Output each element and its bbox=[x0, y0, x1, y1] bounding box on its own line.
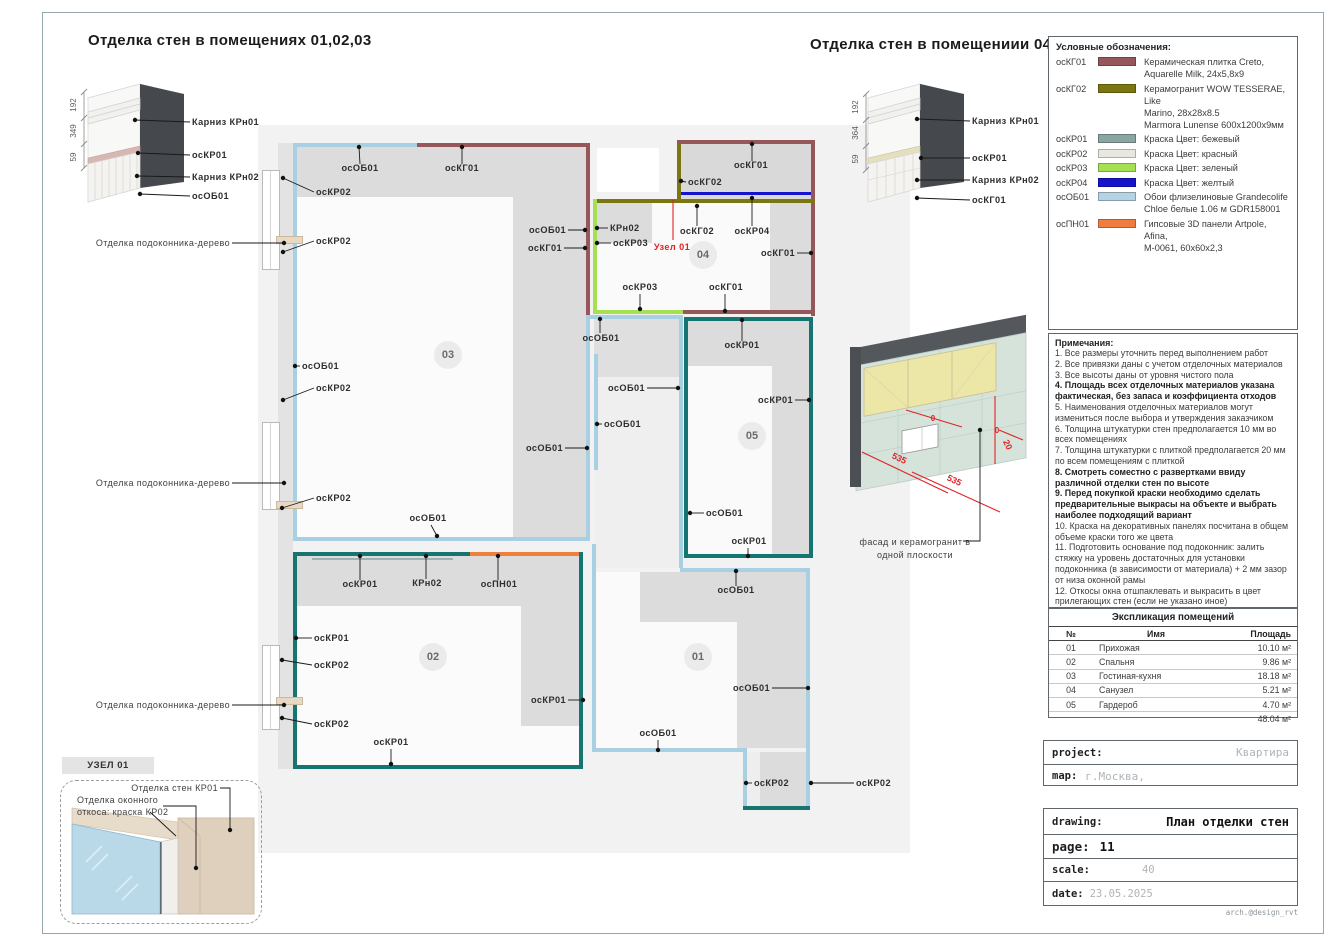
wall-segment-lb bbox=[680, 568, 810, 572]
note-item: 8. Смотреть соместно с развертками ввиду… bbox=[1055, 467, 1291, 489]
note-item: 11. Подготовить основание под подоконник… bbox=[1055, 542, 1291, 585]
col-area: Площадь bbox=[1219, 627, 1297, 640]
legend-code: осКР01 bbox=[1056, 133, 1098, 145]
rooms-table-title: Экспликация помещений bbox=[1049, 609, 1297, 627]
table-row: 02Спальня9.86 м² bbox=[1049, 655, 1297, 669]
drawing-titleblock: drawing: План отделки стен page: 11 scal… bbox=[1043, 808, 1298, 906]
legend-swatch bbox=[1098, 57, 1136, 66]
scale-value: 40 bbox=[1142, 864, 1155, 876]
map-value: г.Москва, bbox=[1085, 770, 1145, 783]
table-row: 01Прихожая10.10 м² bbox=[1049, 641, 1297, 655]
notes-panel: Примечания: 1. Все размеры уточнить пере… bbox=[1048, 333, 1298, 608]
wall-segment-lb bbox=[594, 354, 598, 470]
wall-segment-teal bbox=[293, 765, 583, 769]
floor-fill bbox=[297, 556, 579, 606]
uzel01-tag: УЗЕЛ 01 bbox=[62, 757, 154, 774]
title-room-04: Отделка стен в помещениии 04 bbox=[810, 36, 1051, 53]
note-item: 2. Все привязки даны с учетом отделочных… bbox=[1055, 359, 1291, 370]
author-credit: arch.@design_rvt bbox=[1048, 908, 1298, 917]
legend-swatch bbox=[1098, 192, 1136, 201]
floor-fill bbox=[681, 144, 811, 199]
legend-desc: Краска Цвет: желтый bbox=[1144, 177, 1290, 189]
wall-segment-lb bbox=[293, 143, 417, 147]
scale-label: scale: bbox=[1052, 864, 1090, 876]
wall-segment-gr bbox=[593, 199, 597, 314]
floor-fill bbox=[737, 622, 806, 748]
table-row: 03Гостиная-кухня18.18 м² bbox=[1049, 670, 1297, 684]
page-value: 11 bbox=[1100, 839, 1115, 854]
wall-segment-mr bbox=[417, 143, 590, 147]
wall-segment-teal bbox=[293, 552, 470, 556]
legend-desc: Обои флизелиновые GrandecolifeChloe белы… bbox=[1144, 191, 1290, 215]
legend-row: осКГ02Керамогранит WOW TESSERAE, LikeMar… bbox=[1056, 83, 1290, 131]
legend-code: осКР04 bbox=[1056, 177, 1098, 189]
legend-swatch bbox=[1098, 134, 1136, 143]
wall-segment-lb bbox=[679, 317, 683, 568]
note-item: 12. Откосы окна отшпаклевать и выкрасить… bbox=[1055, 586, 1291, 608]
room-number-01: 01 bbox=[684, 643, 712, 671]
legend-row: осКР02Краска Цвет: красный bbox=[1056, 148, 1290, 160]
table-row: 04Санузел5.21 м² bbox=[1049, 684, 1297, 698]
legend-swatch bbox=[1098, 219, 1136, 228]
note-item: 7. Толщина штукатурки с плиткой предпола… bbox=[1055, 445, 1291, 467]
wall-segment-teal bbox=[684, 317, 688, 558]
floor-fill bbox=[770, 203, 811, 310]
legend-swatch bbox=[1098, 163, 1136, 172]
window bbox=[262, 170, 280, 270]
floor-fill bbox=[640, 572, 806, 622]
col-number: № bbox=[1049, 627, 1093, 640]
legend-desc: Гипсовые 3D панели Artpole, Afina,M-0061… bbox=[1144, 218, 1290, 254]
wall-segment-gr bbox=[593, 310, 685, 314]
floor-fill bbox=[688, 321, 809, 366]
legend-swatch bbox=[1098, 178, 1136, 187]
drawing-row: drawing: План отделки стен bbox=[1044, 809, 1297, 834]
wall-segment-teal bbox=[579, 552, 583, 769]
project-row: project: Квартира bbox=[1044, 741, 1297, 764]
window-sill bbox=[276, 697, 303, 705]
window-sill bbox=[276, 236, 303, 244]
legend-desc: Керамогранит WOW TESSERAE, LikeMarino, 2… bbox=[1144, 83, 1290, 131]
date-label: date: bbox=[1052, 888, 1084, 900]
wall-segment-mr bbox=[586, 143, 590, 315]
note-item: 4. Площадь всех отделочных материалов ук… bbox=[1055, 380, 1291, 402]
legend-code: осОБ01 bbox=[1056, 191, 1098, 215]
window-sill bbox=[276, 501, 303, 509]
note-item: 3. Все высоты даны от уровня чистого пол… bbox=[1055, 370, 1291, 381]
wall-segment-lb bbox=[806, 748, 810, 810]
room-number-02: 02 bbox=[419, 643, 447, 671]
note-item: 10. Краска на декоративных панелях посчи… bbox=[1055, 521, 1291, 543]
notes-title: Примечания: bbox=[1055, 338, 1291, 348]
legend-row: осКГ01Керамическая плитка Creto,Aquarell… bbox=[1056, 56, 1290, 80]
wall-segment-or bbox=[470, 552, 583, 556]
legend-code: осКГ02 bbox=[1056, 83, 1098, 131]
window bbox=[262, 645, 280, 730]
drawing-value: План отделки стен bbox=[1166, 815, 1289, 829]
map-row: map: г.Москва, bbox=[1044, 764, 1297, 787]
floor-fill bbox=[597, 148, 659, 192]
wall-detail-iso-right bbox=[868, 68, 968, 213]
wall-detail-iso-left bbox=[88, 68, 188, 213]
wall-segment-lb bbox=[743, 748, 747, 810]
project-label: project: bbox=[1052, 747, 1103, 759]
note-item: 9. Перед покупкой краски необходимо сдел… bbox=[1055, 488, 1291, 520]
legend-desc: Краска Цвет: зеленый bbox=[1144, 162, 1290, 174]
wall-segment-lb bbox=[588, 315, 683, 319]
wall-segment-teal bbox=[293, 552, 297, 769]
table-row: 05Гардероб4.70 м² bbox=[1049, 698, 1297, 712]
node01-drawing bbox=[850, 315, 1035, 550]
wall-segment-mr bbox=[811, 140, 815, 316]
floor-fill bbox=[597, 203, 652, 243]
floor-fill bbox=[297, 147, 586, 197]
floor-fill bbox=[594, 317, 679, 377]
wall-segment-lb bbox=[293, 537, 590, 541]
date-row: date: 23.05.2025 bbox=[1044, 881, 1297, 905]
legend-swatch bbox=[1098, 149, 1136, 158]
page-row: page: 11 bbox=[1044, 834, 1297, 858]
floor-fill bbox=[760, 752, 806, 806]
drawing-sheet: Отделка стен в помещениях 01,02,03 Отдел… bbox=[0, 0, 1337, 941]
rooms-table-total: 48.04 м² bbox=[1049, 712, 1297, 725]
project-value: Квартира bbox=[1236, 746, 1289, 759]
room-number-04: 04 bbox=[689, 241, 717, 269]
floor-fill bbox=[521, 606, 579, 726]
legend-code: осКР03 bbox=[1056, 162, 1098, 174]
wall-segment-mr bbox=[683, 310, 815, 314]
wall-segment-lb bbox=[592, 748, 747, 752]
note-item: 1. Все размеры уточнить перед выполнение… bbox=[1055, 348, 1291, 359]
total-area: 48.04 м² bbox=[1219, 712, 1297, 725]
date-value: 23.05.2025 bbox=[1090, 888, 1153, 900]
map-label: map: bbox=[1052, 770, 1077, 782]
wall-segment-crn bbox=[312, 558, 453, 560]
legend-row: осПН01Гипсовые 3D панели Artpole, Afina,… bbox=[1056, 218, 1290, 254]
wall-segment-lb bbox=[293, 143, 297, 541]
rooms-table: Экспликация помещений № Имя Площадь 01Пр… bbox=[1048, 608, 1298, 718]
drawing-label: drawing: bbox=[1052, 816, 1103, 828]
legend-desc: Краска Цвет: бежевый bbox=[1144, 133, 1290, 145]
legend-row: осКР03Краска Цвет: зеленый bbox=[1056, 162, 1290, 174]
rooms-table-header: № Имя Площадь bbox=[1049, 627, 1297, 641]
legend-row: осКР04Краска Цвет: желтый bbox=[1056, 177, 1290, 189]
wall-segment-ol bbox=[593, 199, 815, 203]
wall-segment-teal bbox=[809, 317, 813, 558]
wall-segment-lb bbox=[806, 568, 810, 752]
col-name: Имя bbox=[1093, 627, 1219, 640]
legend-code: осКГ01 bbox=[1056, 56, 1098, 80]
legend-row: осКР01Краска Цвет: бежевый bbox=[1056, 133, 1290, 145]
project-titleblock: project: Квартира map: г.Москва, bbox=[1043, 740, 1298, 786]
legend-row: осОБ01Обои флизелиновые GrandecolifeChlo… bbox=[1056, 191, 1290, 215]
legend-desc: Керамическая плитка Creto,Aquarelle Milk… bbox=[1144, 56, 1290, 80]
note-item: 5. Наименования отделочных материалов мо… bbox=[1055, 402, 1291, 424]
note-item: 6. Толщина штукатурки стен предполагаетс… bbox=[1055, 424, 1291, 446]
wall-segment-teal bbox=[743, 806, 810, 810]
scale-row: scale: 40 bbox=[1044, 858, 1297, 881]
wall-segment-mr bbox=[677, 140, 815, 144]
room-number-05: 05 bbox=[738, 422, 766, 450]
legend-title: Условные обозначения: bbox=[1056, 42, 1290, 53]
legend-code: осПН01 bbox=[1056, 218, 1098, 254]
legend-code: осКР02 bbox=[1056, 148, 1098, 160]
wall-segment-lb bbox=[586, 315, 590, 541]
legend-panel: Условные обозначения: осКГ01Керамическая… bbox=[1048, 36, 1298, 330]
wall-segment-teal bbox=[684, 554, 813, 558]
legend-desc: Краска Цвет: красный bbox=[1144, 148, 1290, 160]
room-number-03: 03 bbox=[434, 341, 462, 369]
wall-segment-teal bbox=[684, 317, 813, 321]
wall-segment-lb bbox=[592, 544, 596, 748]
floor-fill bbox=[513, 197, 586, 537]
page-label: page: bbox=[1052, 839, 1090, 854]
legend-swatch bbox=[1098, 84, 1136, 93]
window bbox=[262, 422, 280, 510]
window-corner-detail bbox=[64, 784, 258, 918]
floor-fill bbox=[772, 366, 809, 554]
title-rooms-010203: Отделка стен в помещениях 01,02,03 bbox=[88, 32, 371, 49]
wall-segment-bl bbox=[681, 192, 811, 195]
